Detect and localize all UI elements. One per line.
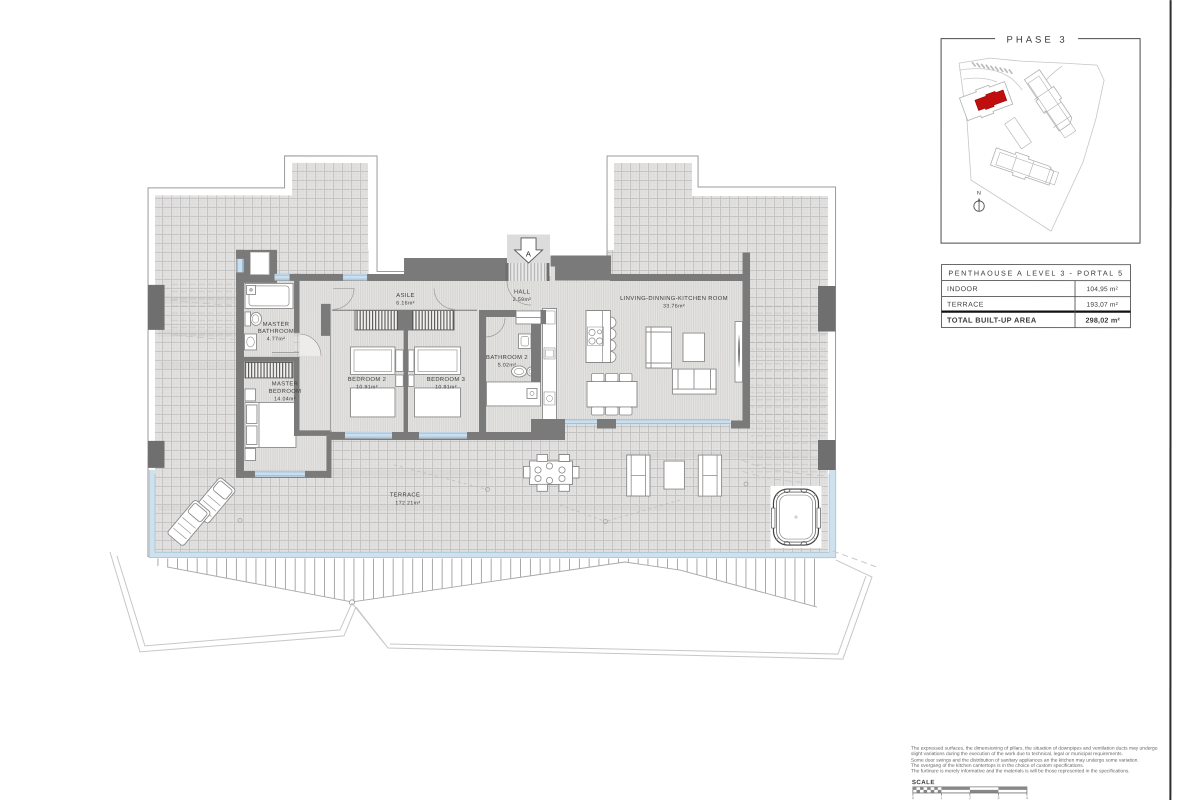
svg-text:Some door swings and the distr: Some door swings and the distribution of… [911, 758, 1139, 764]
svg-text:N: N [977, 191, 981, 197]
svg-text:BEDROOM 3: BEDROOM 3 [427, 377, 465, 383]
svg-text:10.91m²: 10.91m² [435, 384, 457, 390]
svg-text:LINVING-DINNING-KITCHEN ROOM: LINVING-DINNING-KITCHEN ROOM [620, 296, 728, 302]
svg-text:HALL: HALL [514, 289, 530, 295]
svg-text:10.91m²: 10.91m² [356, 384, 378, 390]
svg-text:The overgang of the kitchen ca: The overgang of the kitchen cantertops i… [911, 763, 1084, 769]
svg-text:INDOOR: INDOOR [947, 286, 978, 293]
svg-text:MASTER: MASTER [272, 381, 299, 387]
svg-text:slight variations during the e: slight variations during the execution o… [911, 751, 1123, 757]
svg-text:A: A [526, 249, 531, 258]
svg-text:SCALE: SCALE [912, 779, 935, 786]
svg-text:TOTAL BUILT-UP AREA: TOTAL BUILT-UP AREA [947, 316, 1037, 325]
svg-text:298,02 m²: 298,02 m² [1085, 316, 1120, 325]
svg-text:0: 0 [912, 796, 914, 800]
svg-text:3: 3 [997, 796, 999, 800]
svg-text:The furtinure is merely inform: The furtinure is merely informative and … [911, 768, 1130, 774]
svg-text:4.77m²: 4.77m² [267, 336, 286, 342]
svg-text:33.76m²: 33.76m² [663, 304, 685, 310]
svg-text:5.02m²: 5.02m² [498, 362, 517, 368]
svg-text:MASTER: MASTER [263, 322, 290, 328]
svg-text:BEDROOM 2: BEDROOM 2 [348, 377, 386, 383]
svg-text:BEDROOM: BEDROOM [269, 389, 302, 395]
svg-text:ASILE: ASILE [396, 293, 414, 299]
svg-text:PHASE 3: PHASE 3 [1007, 35, 1068, 46]
svg-text:2.59m²: 2.59m² [513, 297, 532, 303]
svg-text:BATHROOM: BATHROOM [258, 329, 294, 335]
svg-text:The expressed surfaces, the di: The expressed surfaces, the dimensioning… [911, 746, 1158, 752]
svg-text:193,07 m²: 193,07 m² [1087, 302, 1119, 309]
svg-text:4: 4 [1026, 796, 1028, 800]
svg-text:TERRACE: TERRACE [947, 302, 984, 309]
svg-text:104,95 m²: 104,95 m² [1087, 286, 1119, 293]
svg-text:BATHROOM 2: BATHROOM 2 [486, 355, 528, 361]
svg-text:PENTHAOUSE A LEVEL 3 - P: PENTHAOUSE A LEVEL 3 - PORTAL 5 [948, 269, 1123, 278]
svg-text:6.16m²: 6.16m² [396, 300, 415, 306]
svg-text:1: 1 [940, 796, 942, 800]
svg-text:2: 2 [969, 796, 971, 800]
svg-text:TERRACE: TERRACE [390, 492, 421, 498]
svg-text:14.04m²: 14.04m² [274, 396, 296, 402]
svg-text:172.21m²: 172.21m² [395, 500, 420, 506]
